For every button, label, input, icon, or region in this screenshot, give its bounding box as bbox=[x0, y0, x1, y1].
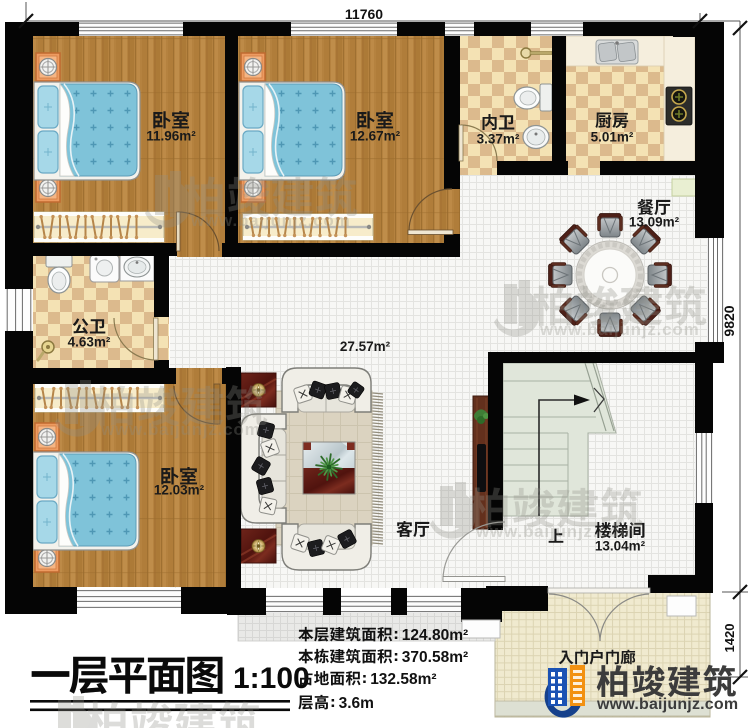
svg-text:27.57m²: 27.57m² bbox=[340, 339, 391, 354]
svg-text:www.baijunjz.com: www.baijunjz.com bbox=[190, 211, 351, 230]
svg-text:12.67m²: 12.67m² bbox=[350, 129, 401, 144]
svg-text:11.96m²: 11.96m² bbox=[146, 129, 196, 144]
svg-text:3.37m²: 3.37m² bbox=[477, 132, 520, 147]
svg-text:11760: 11760 bbox=[345, 6, 383, 22]
svg-text:1420: 1420 bbox=[722, 624, 737, 653]
svg-text:www.baijunjz.com: www.baijunjz.com bbox=[475, 522, 636, 541]
svg-text:1:100: 1:100 bbox=[233, 662, 310, 695]
svg-text:132.58m²: 132.58m² bbox=[370, 671, 436, 688]
svg-text:www.baijunjz.com: www.baijunjz.com bbox=[100, 420, 261, 439]
svg-text:www.baijunjz.com: www.baijunjz.com bbox=[539, 320, 700, 339]
svg-text:12.03m²: 12.03m² bbox=[154, 483, 205, 498]
svg-text:5.01m²: 5.01m² bbox=[591, 130, 634, 145]
svg-text:9820: 9820 bbox=[721, 305, 737, 336]
svg-text:3.6m: 3.6m bbox=[339, 695, 374, 712]
svg-text:124.80m²: 124.80m² bbox=[402, 627, 468, 644]
svg-text:13.09m²: 13.09m² bbox=[629, 215, 680, 230]
svg-text:www.baijunjz.com: www.baijunjz.com bbox=[596, 696, 738, 713]
svg-text:370.58m²: 370.58m² bbox=[402, 649, 468, 666]
svg-text:4.63m²: 4.63m² bbox=[68, 335, 111, 350]
